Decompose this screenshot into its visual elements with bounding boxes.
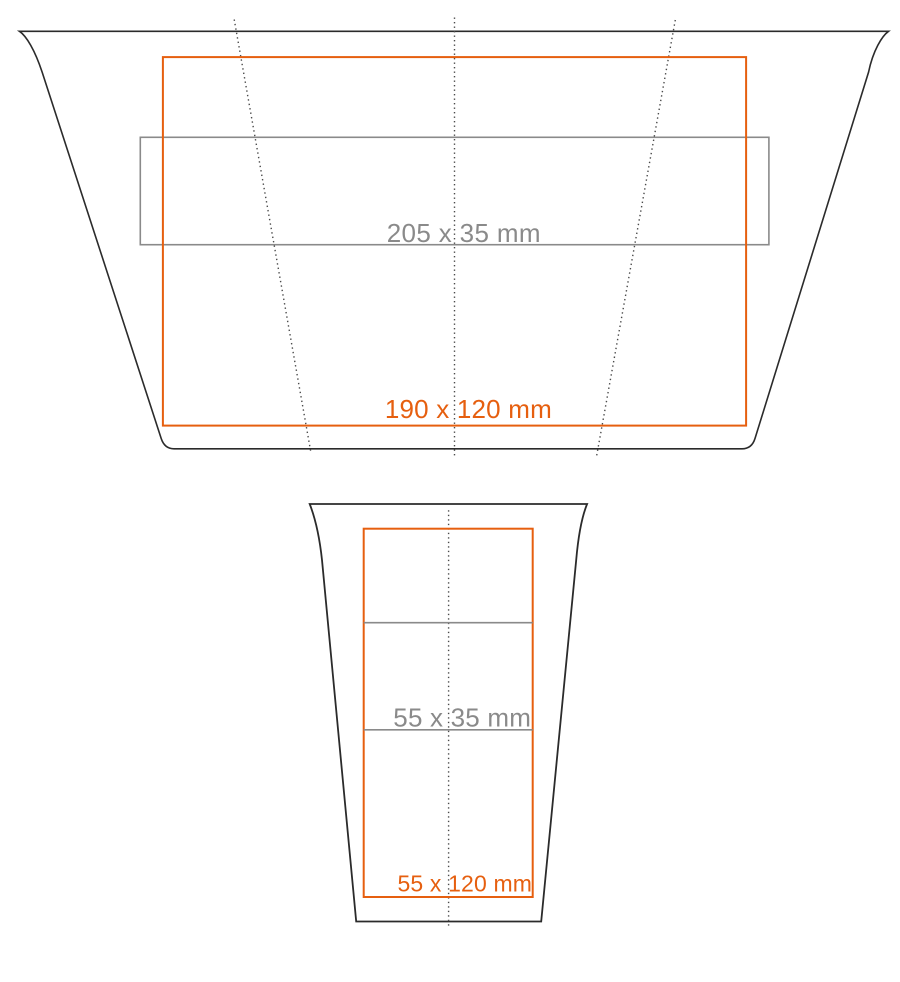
svg-text:190 x 120 mm: 190 x 120 mm xyxy=(385,394,552,424)
svg-text:55 x 35 mm: 55 x 35 mm xyxy=(393,703,531,733)
svg-text:55 x 120 mm: 55 x 120 mm xyxy=(397,870,532,896)
svg-text:205 x 35 mm: 205 x 35 mm xyxy=(387,218,541,248)
